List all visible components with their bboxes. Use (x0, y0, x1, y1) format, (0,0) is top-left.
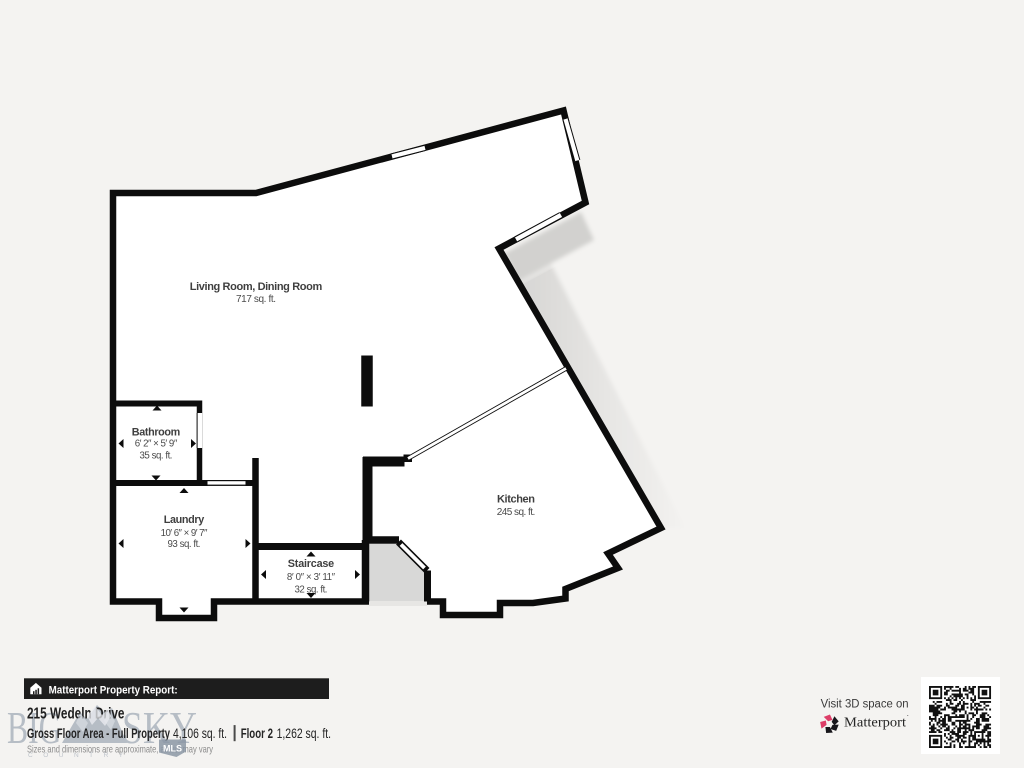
svg-text:Matterport Property Report:: Matterport Property Report: (49, 685, 178, 697)
svg-text:Gross Floor Area - Full Proper: Gross Floor Area - Full Property (27, 726, 170, 741)
svg-text:6′ 2″ × 5′ 9″: 6′ 2″ × 5′ 9″ (135, 439, 178, 450)
svg-text:Bathroom: Bathroom (132, 426, 181, 438)
svg-text:10′ 6″ × 9′ 7″: 10′ 6″ × 9′ 7″ (161, 528, 208, 539)
svg-text:35 sq. ft.: 35 sq. ft. (140, 451, 173, 462)
svg-text:Living Room, Dining Room: Living Room, Dining Room (190, 281, 323, 293)
svg-text:245 sq. ft.: 245 sq. ft. (497, 507, 536, 518)
svg-text:´: ´ (907, 714, 909, 722)
svg-text:Laundry: Laundry (164, 514, 205, 526)
svg-text:1,262 sq. ft.: 1,262 sq. ft. (277, 726, 331, 741)
svg-text:Staircase: Staircase (288, 558, 334, 570)
svg-text:717 sq. ft.: 717 sq. ft. (236, 294, 276, 305)
svg-text:Floor 2: Floor 2 (241, 726, 273, 741)
svg-text:Kitchen: Kitchen (497, 494, 535, 506)
svg-text:Matterport: Matterport (844, 714, 906, 729)
svg-text:93 sq. ft.: 93 sq. ft. (168, 539, 201, 550)
svg-text:4,106 sq. ft.: 4,106 sq. ft. (173, 726, 227, 741)
svg-text:8′ 0″ × 3′ 11″: 8′ 0″ × 3′ 11″ (287, 572, 336, 583)
svg-text:MLS: MLS (163, 744, 182, 754)
svg-text:Visit 3D space on: Visit 3D space on (821, 698, 909, 710)
